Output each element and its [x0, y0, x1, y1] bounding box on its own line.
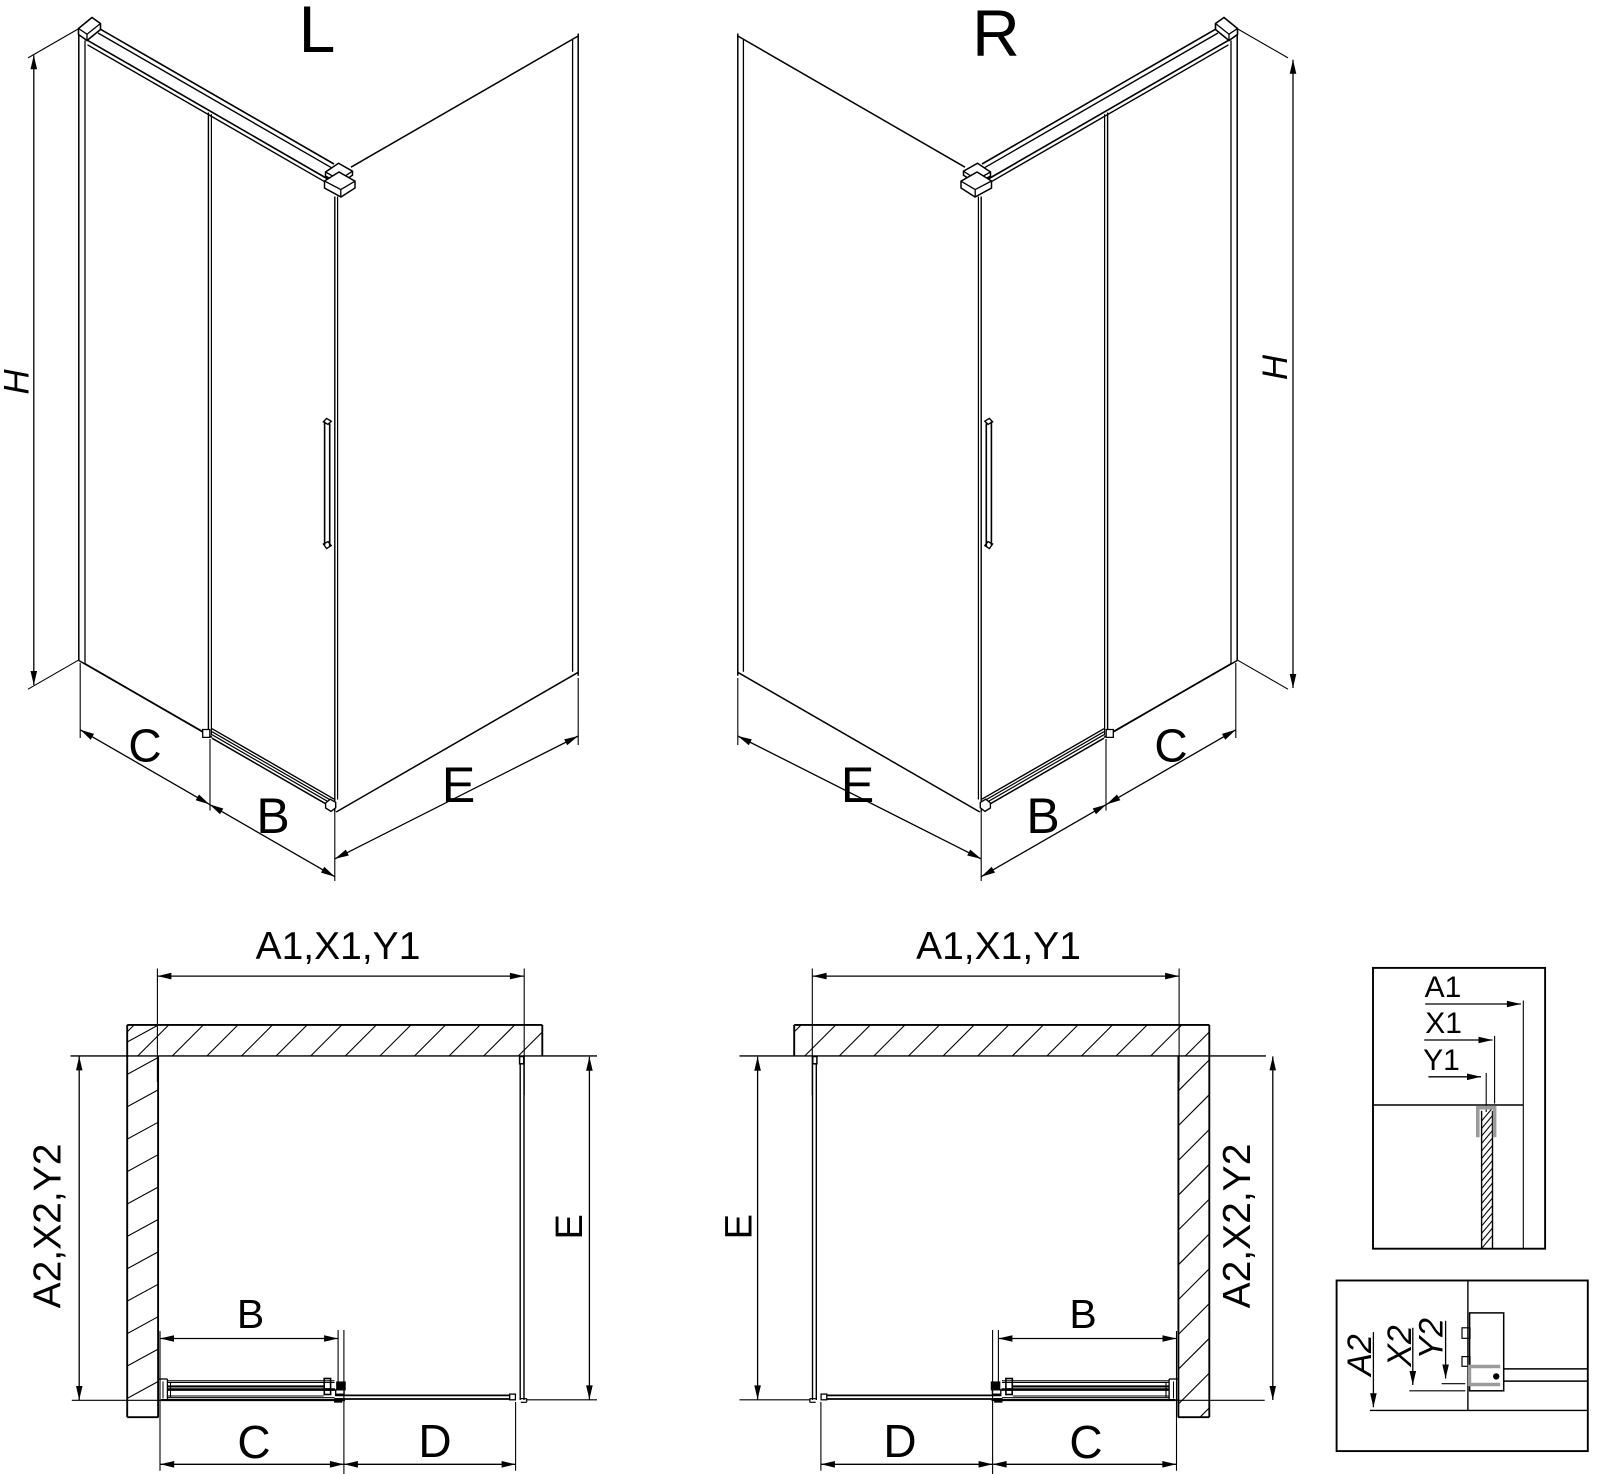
svg-text:A1,X1,Y1: A1,X1,Y1 — [256, 925, 421, 968]
svg-text:H: H — [1256, 354, 1295, 380]
svg-text:E: E — [718, 1214, 760, 1239]
svg-text:A2,X2,Y2: A2,X2,Y2 — [27, 1144, 70, 1309]
svg-text:C: C — [237, 1416, 270, 1468]
svg-text:C: C — [1154, 720, 1187, 772]
svg-text:C: C — [128, 720, 161, 772]
svg-text:R: R — [972, 0, 1020, 70]
svg-text:D: D — [418, 1415, 451, 1467]
svg-text:A1: A1 — [1425, 971, 1462, 1004]
svg-text:B: B — [237, 1291, 264, 1337]
svg-text:D: D — [883, 1415, 916, 1467]
svg-text:H: H — [0, 369, 37, 395]
svg-text:B: B — [1069, 1291, 1096, 1337]
svg-text:B: B — [1026, 788, 1059, 844]
svg-text:Y2: Y2 — [1413, 1318, 1451, 1360]
svg-text:A2: A2 — [1341, 1334, 1379, 1378]
svg-text:E: E — [841, 757, 874, 813]
svg-text:X1: X1 — [1425, 1007, 1462, 1040]
svg-text:E: E — [549, 1214, 591, 1239]
svg-text:A2,X2,Y2: A2,X2,Y2 — [1216, 1144, 1259, 1309]
svg-text:E: E — [442, 757, 475, 813]
svg-text:L: L — [299, 0, 336, 66]
svg-text:Y1: Y1 — [1423, 1044, 1460, 1077]
svg-text:C: C — [1069, 1416, 1102, 1468]
svg-text:B: B — [256, 788, 289, 844]
svg-text:A1,X1,Y1: A1,X1,Y1 — [916, 925, 1081, 968]
